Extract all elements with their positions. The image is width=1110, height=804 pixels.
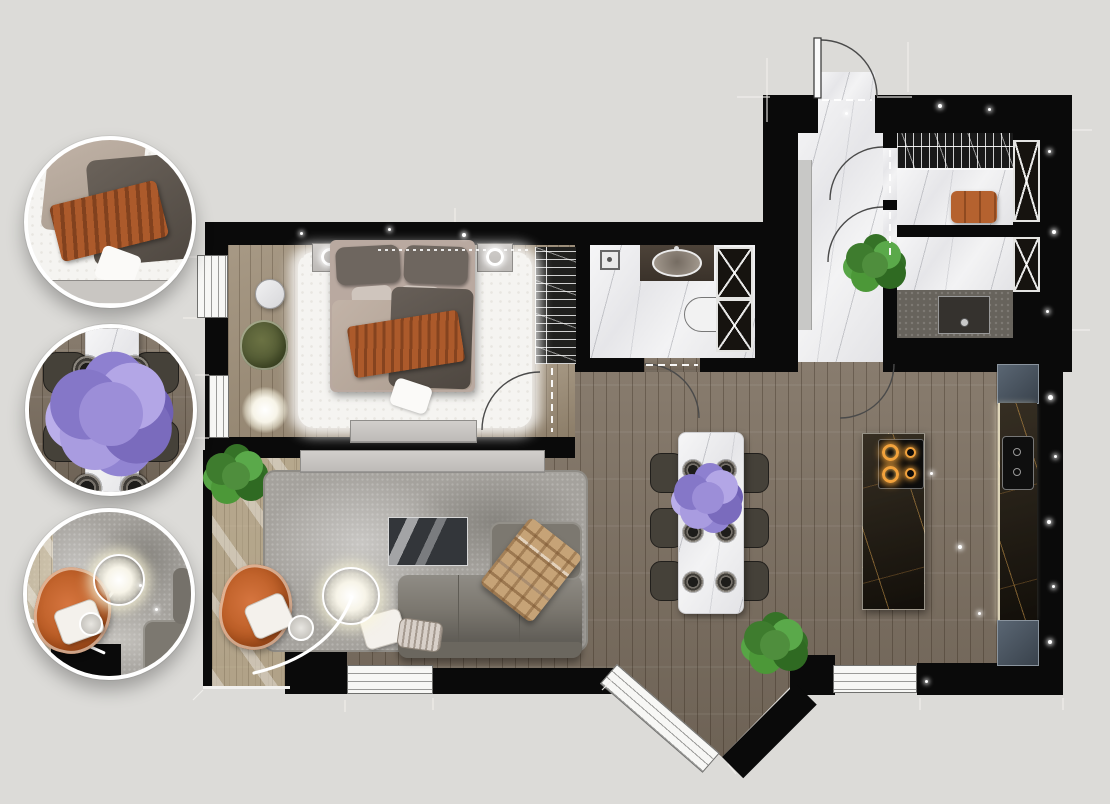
sparkle (300, 232, 303, 235)
vanity-faucet-icon (674, 246, 679, 251)
balcony-sill-line (203, 686, 290, 689)
wall-living-left (203, 450, 212, 686)
kitchen-upper-cabinet (997, 364, 1039, 404)
hall-plant-icon (862, 252, 888, 278)
bedroom-wardrobe (535, 247, 576, 364)
plate-right-1 (714, 458, 738, 482)
plate-right-3 (714, 570, 738, 594)
sparkle (1046, 310, 1049, 313)
wardrobe-x-cabinet (1013, 140, 1040, 222)
callout2-lilac-bouquet (79, 382, 143, 446)
kitchen-lower-cabinet (997, 620, 1039, 666)
sparkle (1048, 150, 1051, 153)
sparkle (958, 545, 962, 549)
utility-room-floor (897, 237, 1013, 290)
burner-small-1 (905, 447, 916, 458)
wall-outer-right-top (1040, 95, 1072, 362)
sparkle (155, 608, 158, 611)
sparkle (925, 680, 928, 683)
bedroom-floor-lamp-glow (242, 387, 288, 433)
bathroom-cabinet-upper (716, 247, 753, 299)
wall-bedroom-top (205, 222, 798, 245)
sparkle (1047, 520, 1051, 524)
kitchen-sink (1002, 436, 1034, 490)
kitchen-faucet-1 (1013, 448, 1021, 456)
sofa-pillow-striped (396, 617, 444, 653)
plate-left-3 (681, 570, 705, 594)
shower-head-dot (607, 257, 612, 262)
sparkle (978, 612, 981, 615)
tv-panel (388, 517, 468, 566)
plate-left-2 (681, 520, 705, 544)
sparkle (1048, 640, 1052, 644)
wall-hall-right-b (883, 200, 897, 210)
callout3-sofa-arm (173, 568, 191, 624)
living-window-bottom (347, 665, 433, 694)
kitchen-window-bottom (833, 665, 917, 693)
arc-lamp-small-disc (288, 615, 314, 641)
sparkle (1052, 585, 1055, 588)
burner-small-2 (905, 468, 916, 479)
wall-rooms-divider (897, 225, 1040, 237)
plate-left-1 (681, 458, 705, 482)
callout3-sofa-corner (143, 620, 191, 676)
wall-bathroom-left (575, 238, 590, 372)
plate-right-2 (714, 520, 738, 544)
wall-kitchen-right (1037, 362, 1063, 695)
round-side-table (255, 279, 285, 309)
burner-large-1 (882, 444, 899, 461)
callout1-dresser (40, 280, 180, 303)
utility-sink (938, 296, 990, 334)
bathroom-cabinet-lower (716, 299, 753, 352)
sparkle (1054, 455, 1057, 458)
living-corner-plant-icon (222, 462, 250, 490)
sparkle (462, 233, 466, 237)
kitchen-faucet-2 (1013, 468, 1021, 476)
sparkle (988, 108, 991, 111)
hall-cabinet (798, 160, 812, 330)
wardrobe-hanger-rail (897, 133, 1013, 168)
hall-door-gap-1 (883, 148, 897, 200)
vanity-sink-icon (652, 249, 702, 277)
bedroom-door-gap (535, 364, 575, 437)
bed-pillow-left (335, 244, 401, 285)
hall-door-gap-2 (883, 210, 897, 260)
bathroom-door-gap (644, 358, 700, 372)
callout2-plate-3 (118, 353, 152, 387)
utility-faucet (960, 318, 969, 327)
callout-bed-detail (24, 136, 196, 308)
callout3-lamp-disc (93, 554, 145, 606)
sparkle (845, 112, 848, 115)
wall-bottom-right (917, 663, 1063, 695)
bedroom-window-lower (209, 375, 229, 438)
wall-bottom-mid (433, 668, 620, 694)
lilac-bouquet-icon (692, 482, 724, 514)
wall-hall-right-a (883, 133, 897, 148)
sparkle (139, 584, 142, 587)
callout-lounge-detail (23, 508, 195, 680)
bed-pillow-right (403, 245, 468, 285)
utility-x-cabinet (1013, 237, 1040, 292)
callout-dining-detail (25, 324, 197, 496)
sparkle (1048, 395, 1053, 400)
ring-lamp-right-icon (486, 248, 504, 266)
wall-entry-hall-left (763, 95, 798, 362)
bedroom-dresser (350, 420, 477, 443)
arc-lamp-disc (322, 567, 380, 625)
bedroom-window-upper (197, 255, 228, 318)
sparkle (1052, 230, 1056, 234)
wall-bottom-left-block (285, 645, 347, 694)
sparkle (388, 228, 391, 231)
green-armchair (240, 320, 288, 370)
entry-threshold (818, 72, 875, 100)
callout2-plate-1 (70, 353, 104, 387)
burner-large-2 (882, 466, 899, 483)
callout3-lamp-small-disc (79, 612, 103, 636)
folded-towels (951, 191, 997, 223)
floor-plan-stage (0, 0, 1110, 804)
kitchen-plant-icon (760, 630, 790, 660)
sparkle (938, 104, 942, 108)
tv-console (300, 450, 545, 473)
sparkle (930, 472, 933, 475)
